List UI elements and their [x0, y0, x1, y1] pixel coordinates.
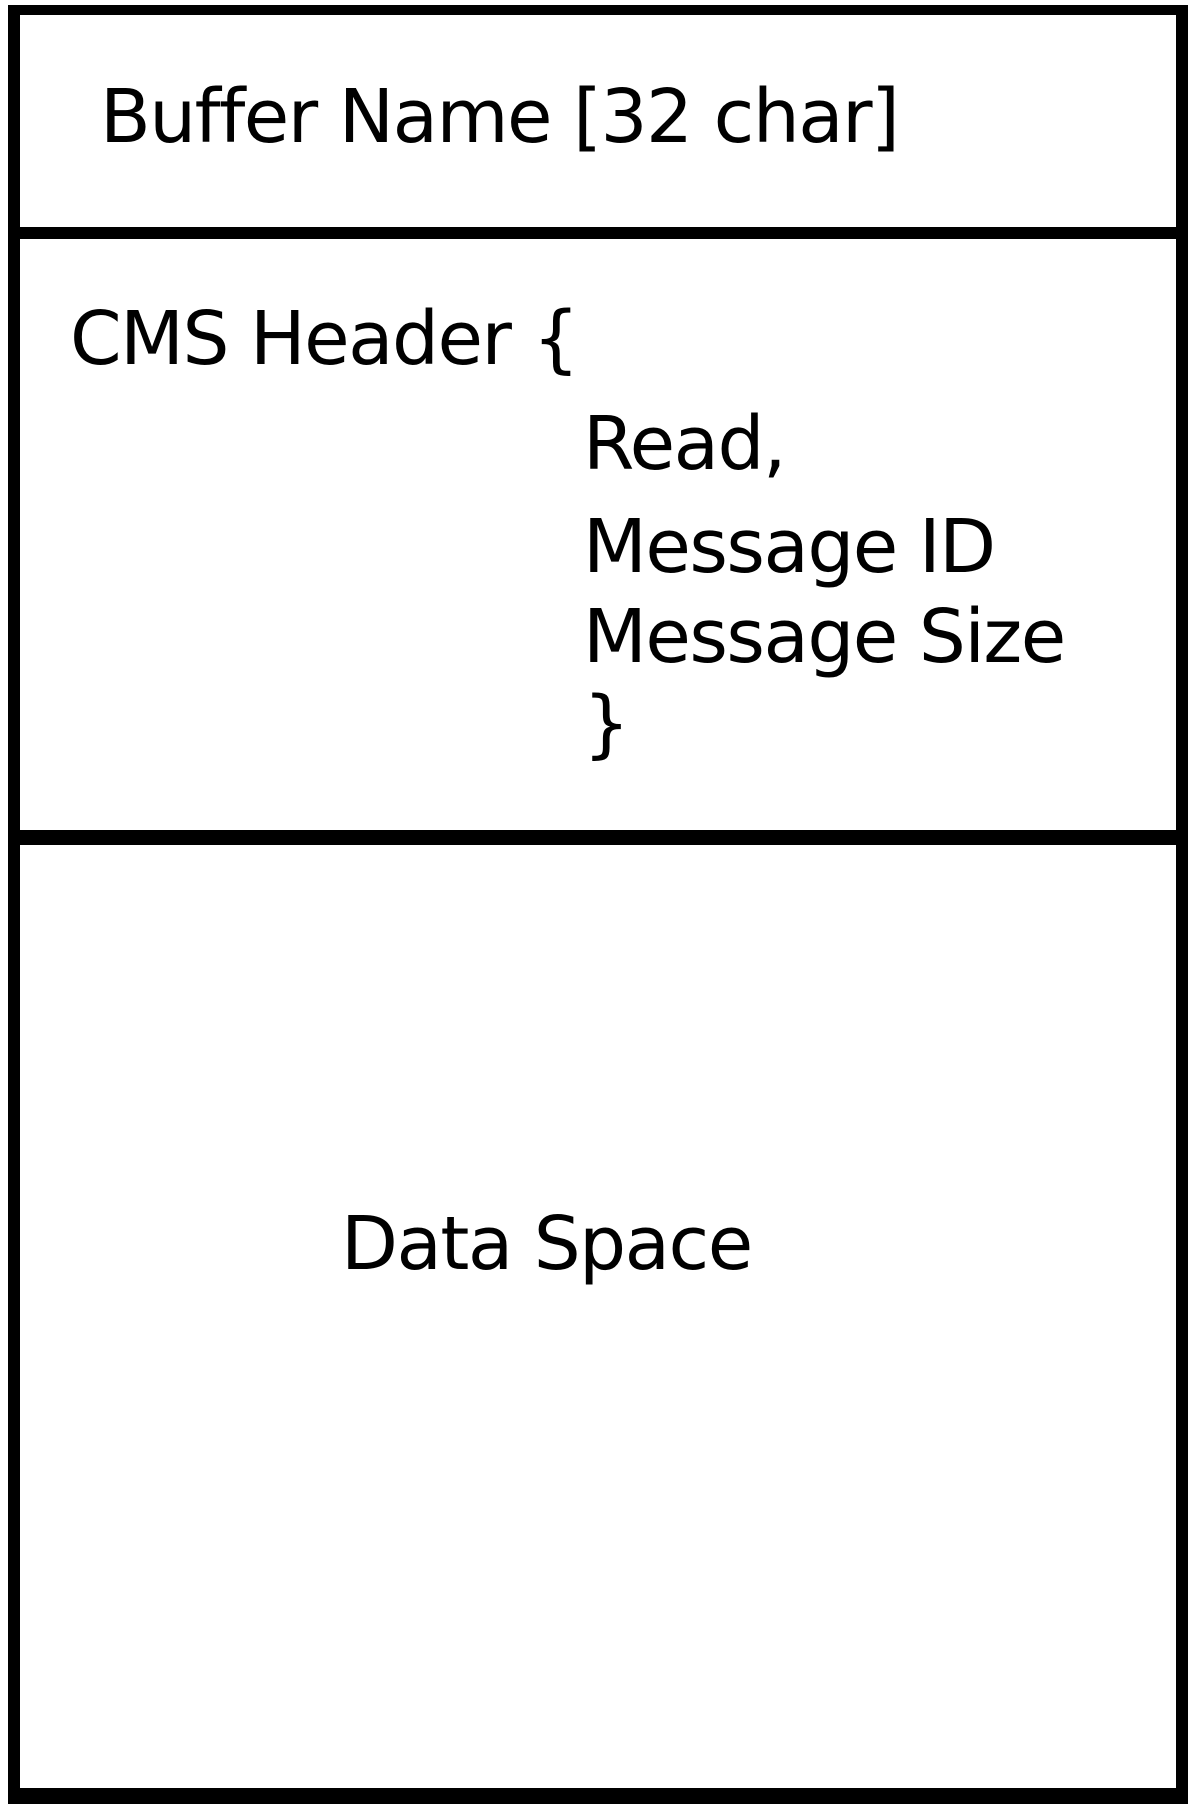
section-divider-top [8, 227, 1188, 239]
cms-header-close-brace: } [583, 687, 629, 761]
cms-header-field-read: Read, [583, 407, 785, 481]
buffer-outer-frame [8, 5, 1188, 1804]
data-space-label: Data Space [341, 1207, 752, 1281]
cms-header-open-label: CMS Header { [70, 302, 578, 376]
buffer-layout-diagram: Buffer Name [32 char] CMS Header { Read,… [0, 0, 1188, 1804]
cms-header-field-message-size: Message Size [583, 600, 1065, 674]
cms-header-field-message-id: Message ID [583, 510, 995, 584]
buffer-name-label: Buffer Name [32 char] [100, 80, 898, 154]
section-divider-bottom [8, 830, 1188, 845]
